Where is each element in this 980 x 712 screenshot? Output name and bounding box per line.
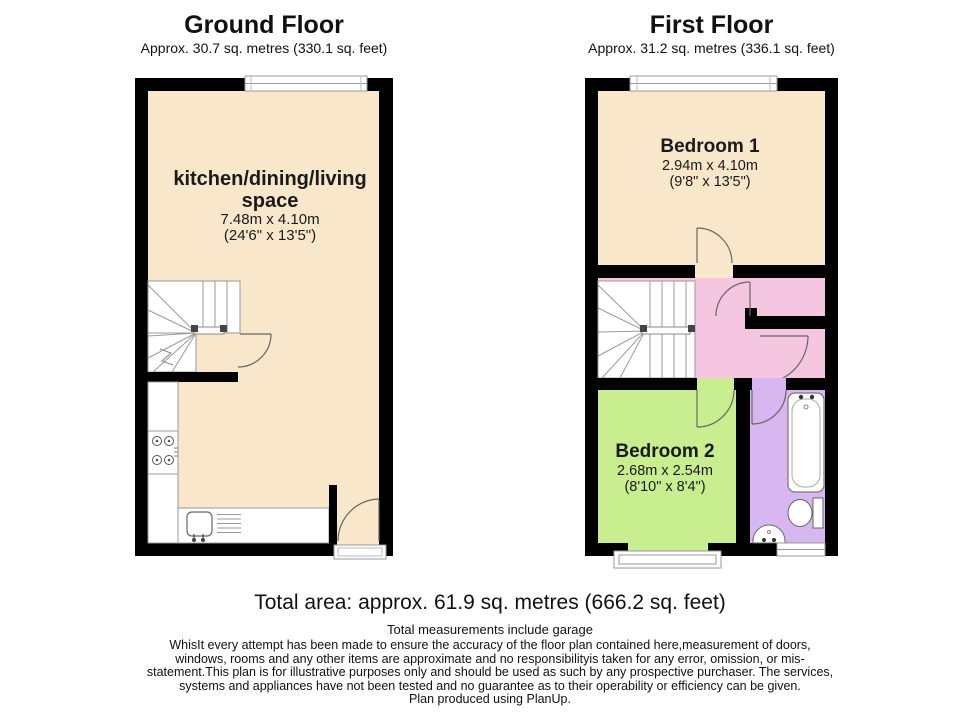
disclaimer-line: WhisIt every attempt has been made to en… (0, 639, 980, 653)
measurements-note: Total measurements include garage (0, 622, 980, 637)
hob-icon (148, 431, 178, 474)
gf-top-window-icon (245, 76, 367, 91)
gf-kitchen-counter-bottom (178, 508, 329, 543)
ff-top-window-icon (630, 76, 777, 91)
ff-bedroom2-door-gap (697, 378, 734, 390)
ground-floor-plan: kitchen/dining/living space 7.48m x 4.10… (135, 76, 393, 559)
ff-bedroom1-label: Bedroom 1 2.94m x 4.10m (9'8" x 13'5") (660, 136, 760, 190)
gf-room-name-line1: kitchen/dining/living (173, 168, 366, 190)
disclaimer: WhisIt every attempt has been made to en… (0, 639, 980, 707)
total-area-text: Total area: approx. 61.9 sq. metres (666… (0, 591, 980, 615)
ff-bedroom2-window-icon (614, 543, 721, 568)
bedroom2-name: Bedroom 2 (615, 441, 714, 462)
ff-bathroom-door-gap (752, 378, 786, 390)
bedroom2-dims-metric: 2.68m x 2.54m (617, 463, 713, 479)
ff-divider-wall (736, 390, 750, 543)
gf-room-dims-metric: 7.48m x 4.10m (220, 211, 319, 228)
ff-bathroom-window-icon (777, 543, 825, 556)
bedroom2-dims-imperial: (8'10" x 8'4") (624, 479, 705, 495)
disclaimer-line: systems and appliances have not been tes… (0, 680, 980, 694)
gf-kitchen-counter-left (148, 382, 178, 543)
bedroom1-dims-imperial: (9'8" x 13'5") (669, 174, 750, 190)
ff-bedroom2-label: Bedroom 2 2.68m x 2.54m (8'10" x 8'4") (615, 441, 714, 495)
disclaimer-line: statement.This plan is for illustrative … (0, 666, 980, 680)
gf-room-name-line2: space (242, 190, 299, 212)
ff-cupboard-wall-stub (745, 308, 757, 329)
bedroom1-name: Bedroom 1 (660, 136, 760, 157)
floorplan-page: Ground Floor Approx. 30.7 sq. metres (33… (0, 0, 980, 712)
planup-credit: Plan produced using PlanUp. (0, 693, 980, 707)
toilet-icon (788, 498, 823, 528)
gf-room-dims-imperial: (24'6" x 13'5") (224, 227, 316, 244)
ff-cupboard-wall (757, 316, 825, 329)
ff-staircase-icon (598, 281, 695, 378)
ff-bedroom1-door-gap (695, 265, 733, 278)
first-floor-plan: Bedroom 1 2.94m x 4.10m (9'8" x 13'5") B… (585, 76, 838, 568)
gf-wall-stub (148, 372, 238, 382)
disclaimer-line: windows, rooms and any other items are a… (0, 653, 980, 667)
bathtub-icon (788, 393, 824, 492)
bedroom1-dims-metric: 2.94m x 4.10m (662, 158, 758, 174)
